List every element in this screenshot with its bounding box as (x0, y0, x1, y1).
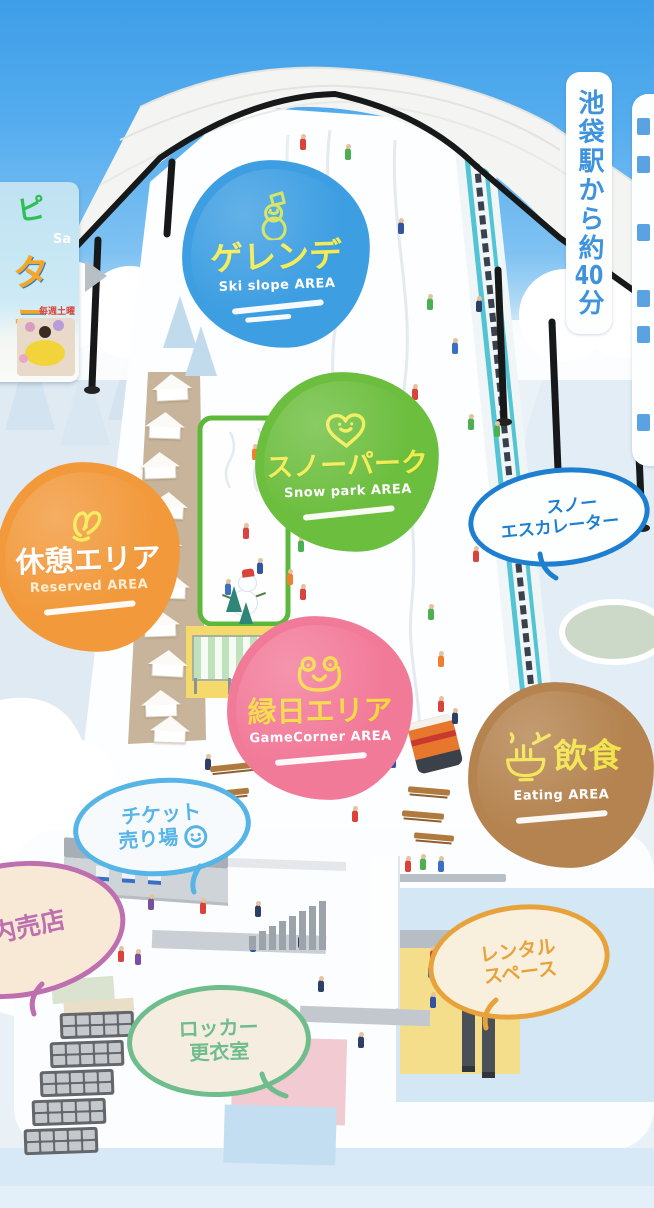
area-title: 縁日エリア (247, 695, 393, 728)
bubble-text: 内売店 (0, 905, 68, 949)
snowman-icon (251, 187, 299, 241)
pergola-post (194, 678, 197, 694)
counter-table (394, 874, 506, 882)
snowman-figure (222, 572, 268, 616)
carousel-next-arrow[interactable] (85, 260, 107, 292)
access-time-text: 池袋駅から約40分 (576, 89, 602, 318)
bubble-tail (536, 552, 566, 586)
poster-frag-top: ピ (14, 186, 47, 230)
underline (516, 809, 608, 823)
area-title: ゲレンデ (210, 238, 343, 277)
access-time-sign: 池袋駅から約40分 (566, 72, 612, 334)
bubble-tail (258, 1072, 294, 1102)
ramen-icon (499, 731, 552, 786)
bubble-tail (26, 982, 52, 1018)
white-wall (370, 856, 398, 1008)
bubble-tail (478, 998, 504, 1034)
underline (245, 314, 291, 323)
partial-sign-right (632, 94, 654, 466)
underline (44, 600, 136, 616)
event-poster[interactable]: ピ Sa タテ 毎週土曜 (0, 182, 79, 382)
rabbit-icon (61, 502, 112, 546)
area-subtitle: Reserved AREA (30, 577, 149, 596)
area-title: 飲食 (553, 739, 622, 776)
heart-icon (320, 407, 372, 453)
frog-icon (292, 654, 347, 697)
area-title: 休憩エリア (15, 543, 161, 578)
underline (232, 299, 324, 315)
area-title: スノーパーク (266, 450, 429, 484)
bubble-text: 売り場 (118, 826, 179, 854)
area-subtitle: Ski slope AREA (218, 276, 335, 295)
poster-frag-small: 毎週土曜 (39, 304, 75, 317)
smiley-icon (182, 824, 208, 850)
underline (303, 505, 395, 521)
pool-zone (223, 1105, 336, 1166)
bubble-text: 更衣室 (189, 1040, 250, 1066)
area-subtitle: Eating AREA (513, 787, 609, 804)
bubble-tail (186, 864, 208, 896)
snow-park-map: ゲレンデ Ski slope AREA スノーパーク Snow park ARE… (0, 0, 654, 1208)
underline (275, 752, 367, 766)
partial-text-fragments (632, 94, 654, 466)
area-subtitle: Snow park AREA (284, 481, 412, 500)
area-subtitle: GameCorner AREA (249, 728, 391, 745)
poster-photo (17, 318, 75, 376)
truck-stripe (411, 730, 457, 747)
